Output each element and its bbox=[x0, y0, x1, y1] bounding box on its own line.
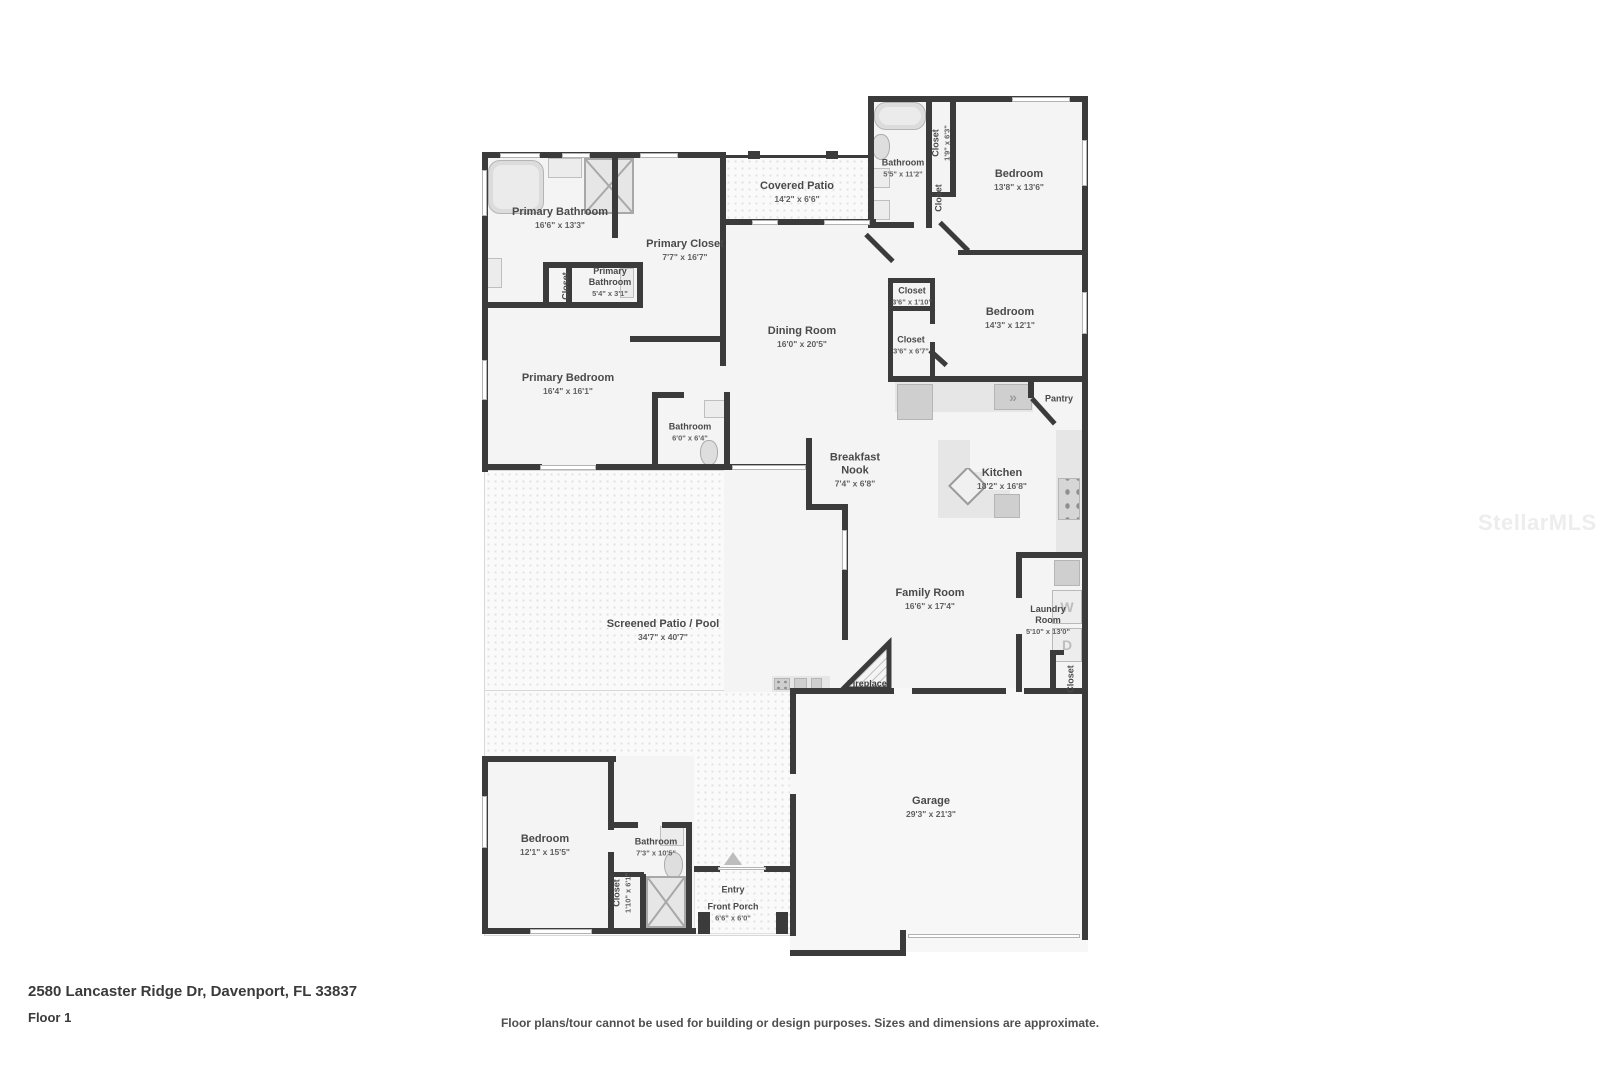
hall-bath-toilet bbox=[700, 440, 718, 466]
entry-direction-arrow bbox=[724, 852, 742, 865]
room-label-garage: Garage29'3" x 21'3" bbox=[906, 795, 956, 819]
wall bbox=[888, 278, 934, 283]
disclaimer-text: Floor plans/tour cannot be used for buil… bbox=[0, 1016, 1600, 1030]
room-label-screened-patio: Screened Patio / Pool34'7" x 40'7" bbox=[607, 618, 719, 642]
window bbox=[842, 530, 847, 570]
bath2-tub bbox=[874, 102, 926, 130]
wall bbox=[596, 464, 658, 470]
wall bbox=[790, 688, 796, 774]
wall bbox=[958, 250, 1084, 255]
wall bbox=[686, 822, 692, 934]
room-label-primary-closet: Primary Closet7'7" x 16'7" bbox=[646, 238, 724, 262]
wall bbox=[912, 688, 1006, 694]
wall bbox=[1016, 552, 1022, 598]
wall bbox=[482, 756, 616, 762]
window bbox=[500, 153, 540, 158]
stove-burners bbox=[1058, 478, 1080, 520]
wall bbox=[482, 302, 546, 308]
range-icon: » bbox=[1009, 389, 1017, 405]
garage-fill bbox=[790, 688, 1088, 952]
wall bbox=[652, 392, 658, 470]
room-label-bathroom-3: Bathroom7'3" x 10'5" bbox=[635, 837, 678, 858]
room-label-primary-bathroom: Primary Bathroom16'6" x 13'3" bbox=[512, 206, 608, 230]
bath3-shower bbox=[646, 876, 686, 928]
room-label-bedroom-2: Bedroom14'3" x 12'1" bbox=[985, 306, 1035, 330]
window bbox=[482, 796, 487, 848]
wall bbox=[612, 822, 638, 828]
room-label-bedroom-3: Bedroom12'1" x 15'5" bbox=[520, 833, 570, 857]
room-label-closet: Closet bbox=[561, 272, 572, 300]
grill bbox=[774, 678, 790, 690]
room-label-closet-hall: Closet1'9" x 6'3" bbox=[931, 125, 952, 161]
window bbox=[1082, 140, 1087, 186]
front-door bbox=[718, 867, 766, 870]
room-label-closet-upper: Closet3'6" x 1'10" bbox=[892, 286, 932, 307]
wall bbox=[608, 756, 614, 830]
room-label-covered-patio: Covered Patio14'2" x 6'6" bbox=[760, 180, 834, 204]
sliding-door bbox=[732, 465, 806, 470]
room-label-family-room: Family Room16'6" x 17'4" bbox=[895, 587, 964, 611]
primary-sink-2 bbox=[486, 258, 502, 288]
wall bbox=[612, 152, 618, 238]
room-label-closet-laundry: Closet bbox=[1066, 665, 1077, 693]
room-label-laundry-room: Laundry Room5'10" x 13'0" bbox=[1026, 604, 1070, 636]
wall bbox=[1050, 650, 1064, 655]
wall bbox=[652, 392, 684, 398]
wall bbox=[1028, 376, 1034, 398]
room-label-primary-bathroom-2: Primary Bathroom5'4" x 3'1" bbox=[589, 266, 632, 298]
wall bbox=[868, 222, 914, 228]
room-label-dining-room: Dining Room16'0" x 20'5" bbox=[768, 325, 836, 349]
wall bbox=[764, 866, 792, 872]
wall bbox=[900, 930, 906, 956]
wall bbox=[1082, 96, 1088, 940]
property-address: 2580 Lancaster Ridge Dr, Davenport, FL 3… bbox=[28, 983, 357, 1000]
laundry-sink bbox=[1054, 560, 1080, 586]
wall bbox=[724, 155, 874, 158]
window bbox=[1012, 97, 1070, 102]
window bbox=[482, 360, 487, 400]
bath2-toilet bbox=[872, 134, 890, 160]
bath2-vanity-2 bbox=[872, 200, 890, 220]
room-label-closet-lower: Closet3'6" x 6'7" bbox=[893, 335, 929, 356]
room-label-primary-bedroom: Primary Bedroom16'4" x 16'1" bbox=[522, 372, 614, 396]
wall bbox=[748, 151, 760, 159]
dishwasher bbox=[994, 494, 1020, 518]
room-label-closet-bedroom-1: Closet bbox=[934, 184, 945, 212]
wall bbox=[1050, 650, 1056, 692]
window bbox=[824, 220, 870, 225]
wall bbox=[640, 874, 646, 932]
wall bbox=[790, 950, 906, 956]
wall bbox=[630, 336, 726, 342]
sliding-door bbox=[540, 465, 596, 470]
room-label-closet-bedroom-3: Closet1'10" x 6'1" bbox=[612, 873, 633, 913]
wall bbox=[868, 96, 874, 228]
stellar-mls-watermark: StellarMLS bbox=[1478, 510, 1597, 536]
wall bbox=[694, 866, 720, 872]
wall bbox=[842, 504, 848, 640]
window bbox=[562, 153, 590, 158]
floor-plan-canvas: » W D bbox=[0, 0, 1600, 1066]
wall bbox=[724, 392, 730, 470]
room-label-bedroom-1: Bedroom13'8" x 13'6" bbox=[994, 168, 1044, 192]
window bbox=[752, 220, 778, 225]
wall bbox=[926, 96, 932, 228]
wall bbox=[652, 464, 730, 470]
room-label-kitchen: Kitchen18'2" x 16'8" bbox=[977, 467, 1027, 491]
room-label-breakfast-nook: Breakfast Nook7'4" x 6'8" bbox=[830, 451, 880, 488]
room-label-fireplace: Fireplace bbox=[847, 679, 887, 690]
window bbox=[530, 929, 592, 934]
wall bbox=[790, 794, 796, 936]
window bbox=[640, 153, 678, 158]
wall bbox=[543, 302, 643, 308]
wall bbox=[1016, 552, 1086, 558]
wall bbox=[826, 151, 838, 159]
wall bbox=[888, 376, 1088, 382]
room-label-front-porch: Front Porch6'6" x 6'0" bbox=[708, 902, 759, 923]
wall bbox=[482, 464, 542, 470]
wall bbox=[776, 912, 788, 934]
wall bbox=[1024, 688, 1086, 694]
wall bbox=[1016, 634, 1022, 692]
room-label-bathroom-2: Bathroom5'5" x 11'2" bbox=[882, 158, 925, 179]
primary-vanity bbox=[548, 158, 582, 178]
window bbox=[1082, 292, 1087, 334]
wall bbox=[806, 504, 848, 510]
window bbox=[482, 170, 487, 216]
room-label-pantry: Pantry bbox=[1045, 394, 1073, 405]
refrigerator bbox=[897, 384, 933, 420]
room-label-entry: Entry bbox=[721, 885, 744, 896]
wall bbox=[806, 438, 812, 508]
garage-door bbox=[908, 934, 1080, 938]
range-hood: » bbox=[994, 384, 1032, 410]
hall-bath-vanity bbox=[704, 400, 726, 418]
wall bbox=[720, 342, 726, 366]
room-label-bathroom-hall: Bathroom6'0" x 6'4" bbox=[669, 422, 712, 443]
wall bbox=[888, 306, 934, 311]
